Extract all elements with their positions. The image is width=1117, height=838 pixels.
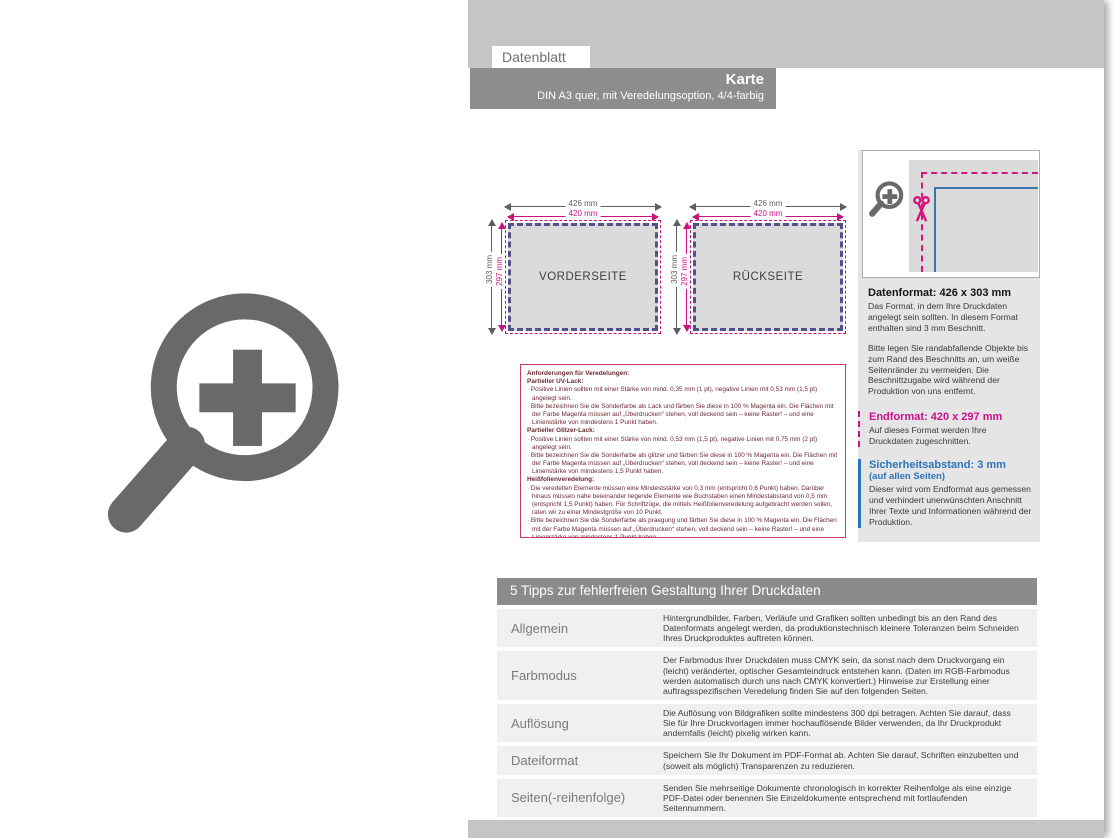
format-info-text: Datenformat: 426 x 303 mm Das Format, in… (858, 278, 1040, 542)
safety-body: Dieser wird vom Endformat aus gemessen u… (869, 484, 1032, 528)
dim-label-width-inner: 420 mm (751, 209, 786, 219)
datenformat-paragraph-2: Bitte legen Sie randabfallende Objekte b… (868, 343, 1032, 398)
safety-line-horizontal (934, 187, 1038, 189)
tips-table-row: Allgemein Hintergrundbilder, Farben, Ver… (497, 609, 1037, 647)
requirements-line: Partieller Glitzer-Lack: (527, 427, 839, 435)
diagram-front: 426 mm 420 mm 303 mm 297 mm VORDERSEITE (488, 194, 668, 339)
tips-table-row: Dateiformat Speichern Sie Ihr Dokument i… (497, 746, 1037, 774)
dim-label-height-inner: 297 mm (495, 254, 505, 289)
tips-row-label: Allgemein (497, 609, 649, 647)
requirements-line: Anforderungen für Veredelungen: (527, 370, 839, 378)
dim-label-width-inner: 420 mm (566, 209, 601, 219)
safety-subheading: (auf allen Seiten) (869, 471, 1032, 482)
requirements-line: Heißfolienveredelung: (527, 476, 839, 484)
safety-heading: Sicherheitsabstand: 3 mm (869, 459, 1032, 471)
zoom-plus-magnifier-icon (105, 262, 365, 551)
scissors-icon (912, 196, 931, 224)
requirements-line: · Bitte bezeichnen Sie die Sonderfarbe a… (527, 403, 839, 428)
datenformat-paragraph-1: Das Format, in dem Ihre Druckdaten angel… (868, 301, 1032, 334)
card-front-label: VORDERSEITE (539, 271, 627, 283)
card-back: RÜCKSEITE (693, 223, 843, 331)
tips-row-label: Seiten(-reihenfolge) (497, 779, 649, 817)
endformat-heading: Endformat: 420 x 297 mm (869, 411, 1032, 423)
dim-label-height-outer: 303 mm (670, 252, 680, 287)
endformat-section: Endformat: 420 x 297 mm Auf dieses Forma… (858, 411, 1032, 447)
card-front-bleed-outline: VORDERSEITE (505, 220, 661, 334)
dim-label-width-outer: 426 mm (566, 199, 601, 209)
corner-preview (909, 160, 1038, 272)
tips-row-label: Dateiformat (497, 746, 649, 774)
card-front: VORDERSEITE (508, 223, 658, 331)
requirements-line: · Bitte bezeichnen Sie die Sonderfarbe a… (527, 452, 839, 477)
product-header-bar: Karte DIN A3 quer, mit Veredelungsoption… (470, 68, 776, 109)
dim-label-height-inner: 297 mm (680, 254, 690, 289)
tips-table: 5 Tipps zur fehlerfreien Gestaltung Ihre… (497, 578, 1037, 817)
product-title: Karte (470, 71, 764, 89)
tips-row-label: Auflösung (497, 704, 649, 742)
veredelung-requirements-box: Anforderungen für Veredelungen:Partielle… (520, 364, 846, 538)
tips-row-text: Der Farbmodus Ihrer Druckdaten muss CMYK… (649, 651, 1037, 700)
datenformat-heading: Datenformat: 426 x 303 mm (868, 287, 1032, 299)
card-back-bleed-outline: RÜCKSEITE (690, 220, 846, 334)
requirements-line: Partieller UV-Lack: (527, 378, 839, 386)
datasheet-page: { "header": { "tab": "Datenblatt", "titl… (0, 0, 1117, 838)
requirements-line: · Die veredelten Elemente müssen eine Mi… (527, 485, 839, 518)
tips-row-text: Speichern Sie Ihr Dokument im PDF-Format… (649, 746, 1037, 774)
tips-table-row: Farbmodus Der Farbmodus Ihrer Druckdaten… (497, 651, 1037, 700)
tips-row-label: Farbmodus (497, 651, 649, 700)
endformat-body: Auf dieses Format werden Ihre Druckdaten… (869, 425, 1032, 447)
zoom-plus-magnifier-icon (869, 177, 907, 219)
dim-label-width-outer: 426 mm (751, 199, 786, 209)
datasheet-sheet: Datenblatt Karte DIN A3 quer, mit Verede… (468, 0, 1104, 838)
dim-label-height-outer: 303 mm (485, 252, 495, 287)
tips-row-text: Hintergrundbilder, Farben, Verläufe und … (649, 609, 1037, 647)
format-info-panel: Datenformat: 426 x 303 mm Das Format, in… (858, 150, 1040, 542)
tips-table-title: 5 Tipps zur fehlerfreien Gestaltung Ihre… (497, 578, 1037, 605)
tips-table-rows: Allgemein Hintergrundbilder, Farben, Ver… (497, 609, 1037, 817)
card-back-label: RÜCKSEITE (733, 271, 803, 283)
bleed-preview-box (862, 150, 1040, 278)
product-subtitle: DIN A3 quer, mit Veredelungsoption, 4/4-… (470, 89, 764, 103)
bottom-band (468, 820, 1104, 838)
requirements-line: · Positive Linien sollten mit einer Stär… (527, 386, 839, 402)
requirements-line: · Bitte bezeichnen Sie die Sonderfarbe a… (527, 517, 839, 538)
safety-line-vertical (934, 187, 936, 272)
requirements-line: · Positive Linien sollten mit einer Stär… (527, 436, 839, 452)
diagram-back: 426 mm 420 mm 303 mm 297 mm RÜCKSEITE (673, 194, 853, 339)
tips-row-text: Die Auflösung von Bildgrafiken sollte mi… (649, 704, 1037, 742)
safety-margin-section: Sicherheitsabstand: 3 mm (auf allen Seit… (858, 459, 1032, 528)
tips-row-text: Senden Sie mehrseitige Dokumente chronol… (649, 779, 1037, 817)
tips-table-row: Seiten(-reihenfolge) Senden Sie mehrseit… (497, 779, 1037, 817)
cut-line-horizontal (921, 172, 1038, 174)
datenblatt-tab: Datenblatt (492, 46, 590, 68)
tips-table-row: Auflösung Die Auflösung von Bildgrafiken… (497, 704, 1037, 742)
